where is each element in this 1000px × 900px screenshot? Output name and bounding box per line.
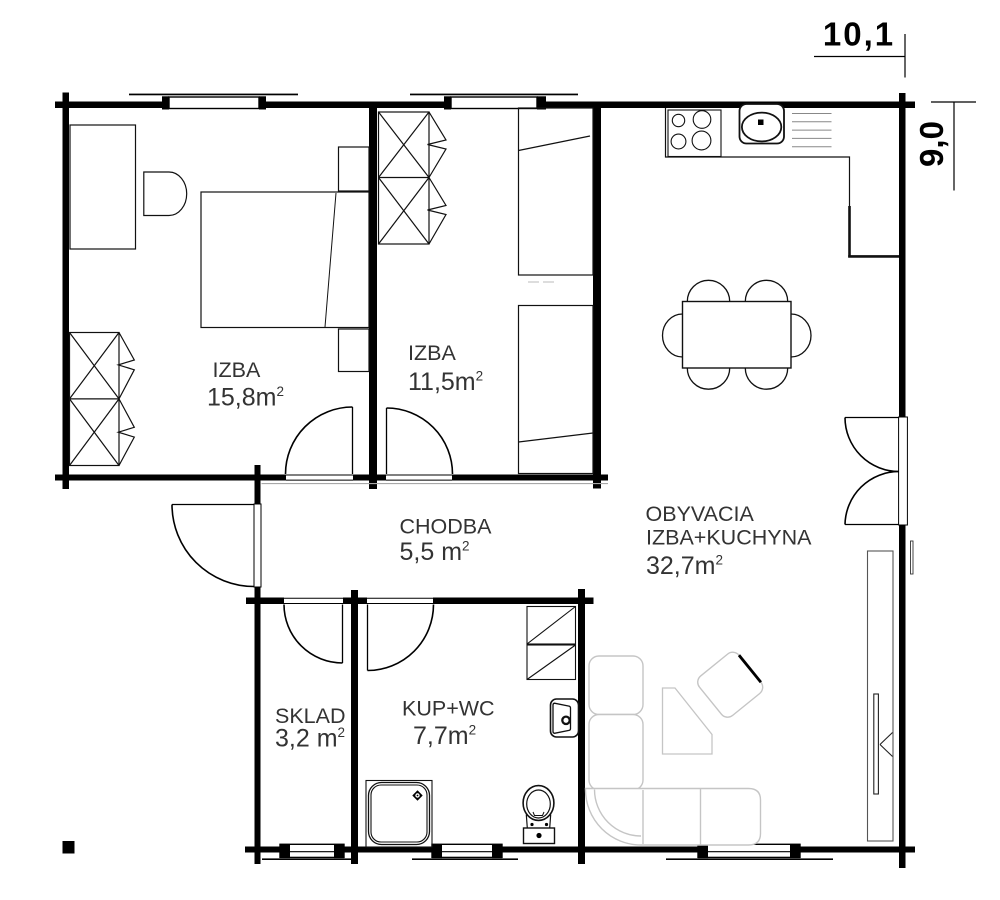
svg-text:11,5m2: 11,5m2 xyxy=(408,368,483,396)
svg-text:10,1: 10,1 xyxy=(823,16,895,53)
svg-text:KUP+WC: KUP+WC xyxy=(402,697,495,721)
svg-text:IZBA: IZBA xyxy=(408,341,456,365)
svg-text:9,0: 9,0 xyxy=(913,121,950,167)
svg-text:IZBA: IZBA xyxy=(213,358,261,382)
svg-text:15,8m2: 15,8m2 xyxy=(207,384,284,412)
svg-text:7,7m2: 7,7m2 xyxy=(413,722,476,750)
svg-text:32,7m2: 32,7m2 xyxy=(646,552,723,580)
svg-text:3,2 m2: 3,2 m2 xyxy=(275,725,345,753)
svg-text:5,5 m2: 5,5 m2 xyxy=(400,538,470,566)
svg-text:IZBA+KUCHYNA: IZBA+KUCHYNA xyxy=(646,526,812,550)
svg-text:OBYVACIA: OBYVACIA xyxy=(646,502,755,526)
svg-text:CHODBA: CHODBA xyxy=(400,515,493,539)
